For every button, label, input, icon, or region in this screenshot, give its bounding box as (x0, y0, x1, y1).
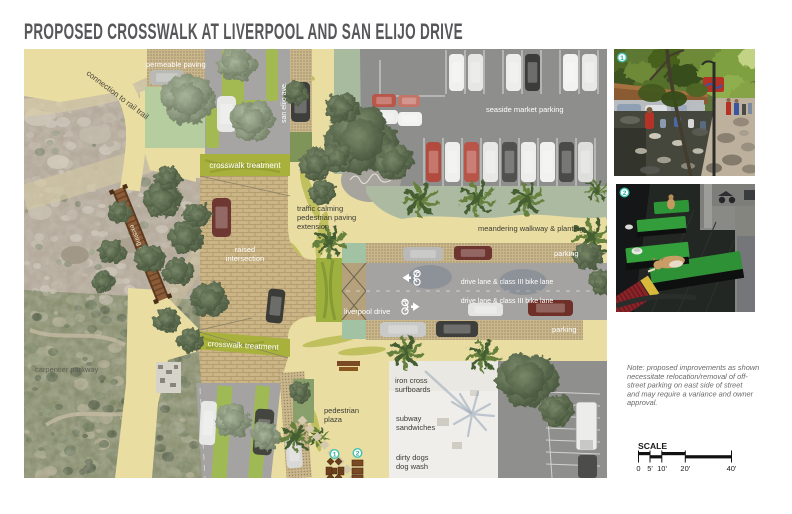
svg-text:parking: parking (554, 249, 579, 258)
svg-text:0: 0 (636, 464, 640, 473)
svg-text:and may require a variance and: and may require a variance and owner (627, 389, 754, 398)
svg-text:Note: proposed improvements as: Note: proposed improvements as shown (627, 363, 759, 372)
svg-text:surfboards: surfboards (395, 385, 431, 394)
svg-text:drive lane & class III bike la: drive lane & class III bike lane (461, 298, 554, 305)
svg-text:pedestrian paving: pedestrian paving (297, 213, 356, 222)
svg-text:carpentier parkway: carpentier parkway (35, 365, 99, 374)
svg-text:raised: raised (235, 245, 255, 254)
svg-text:sandwiches: sandwiches (396, 423, 435, 432)
svg-text:2: 2 (623, 190, 627, 197)
svg-text:2: 2 (356, 450, 360, 457)
svg-text:permeable paving: permeable paving (146, 60, 206, 69)
svg-text:1: 1 (333, 451, 337, 458)
svg-text:20': 20' (680, 464, 690, 473)
svg-text:dog wash: dog wash (396, 462, 428, 471)
svg-text:crosswalk treatment: crosswalk treatment (209, 161, 281, 170)
svg-text:seaside market parking: seaside market parking (486, 105, 564, 114)
svg-text:dirty dogs: dirty dogs (396, 453, 429, 462)
svg-text:5': 5' (647, 464, 653, 473)
svg-text:necessitate relocation/removal: necessitate relocation/removal of off- (627, 372, 748, 381)
svg-text:parking: parking (552, 325, 577, 334)
svg-text:plaza: plaza (324, 415, 343, 424)
svg-text:approval.: approval. (627, 398, 657, 407)
svg-text:traffic calming: traffic calming (297, 204, 343, 213)
svg-text:street parking on east side of: street parking on east side of street (627, 381, 743, 390)
svg-text:subway: subway (396, 414, 422, 423)
svg-text:meandering walkway & planting: meandering walkway & planting (478, 224, 583, 233)
svg-text:10': 10' (657, 464, 667, 473)
svg-text:liverpool drive: liverpool drive (344, 307, 390, 316)
svg-text:pedestrian: pedestrian (324, 406, 359, 415)
svg-text:extension: extension (297, 222, 329, 231)
svg-text:intersection: intersection (226, 254, 264, 263)
svg-text:40': 40' (727, 464, 737, 473)
svg-text:1: 1 (620, 55, 624, 62)
svg-text:iron cross: iron cross (395, 376, 428, 385)
svg-text:drive lane & class III bike la: drive lane & class III bike lane (461, 279, 554, 286)
svg-text:SCALE: SCALE (638, 441, 667, 451)
svg-text:san elijo ave.: san elijo ave. (281, 82, 288, 123)
